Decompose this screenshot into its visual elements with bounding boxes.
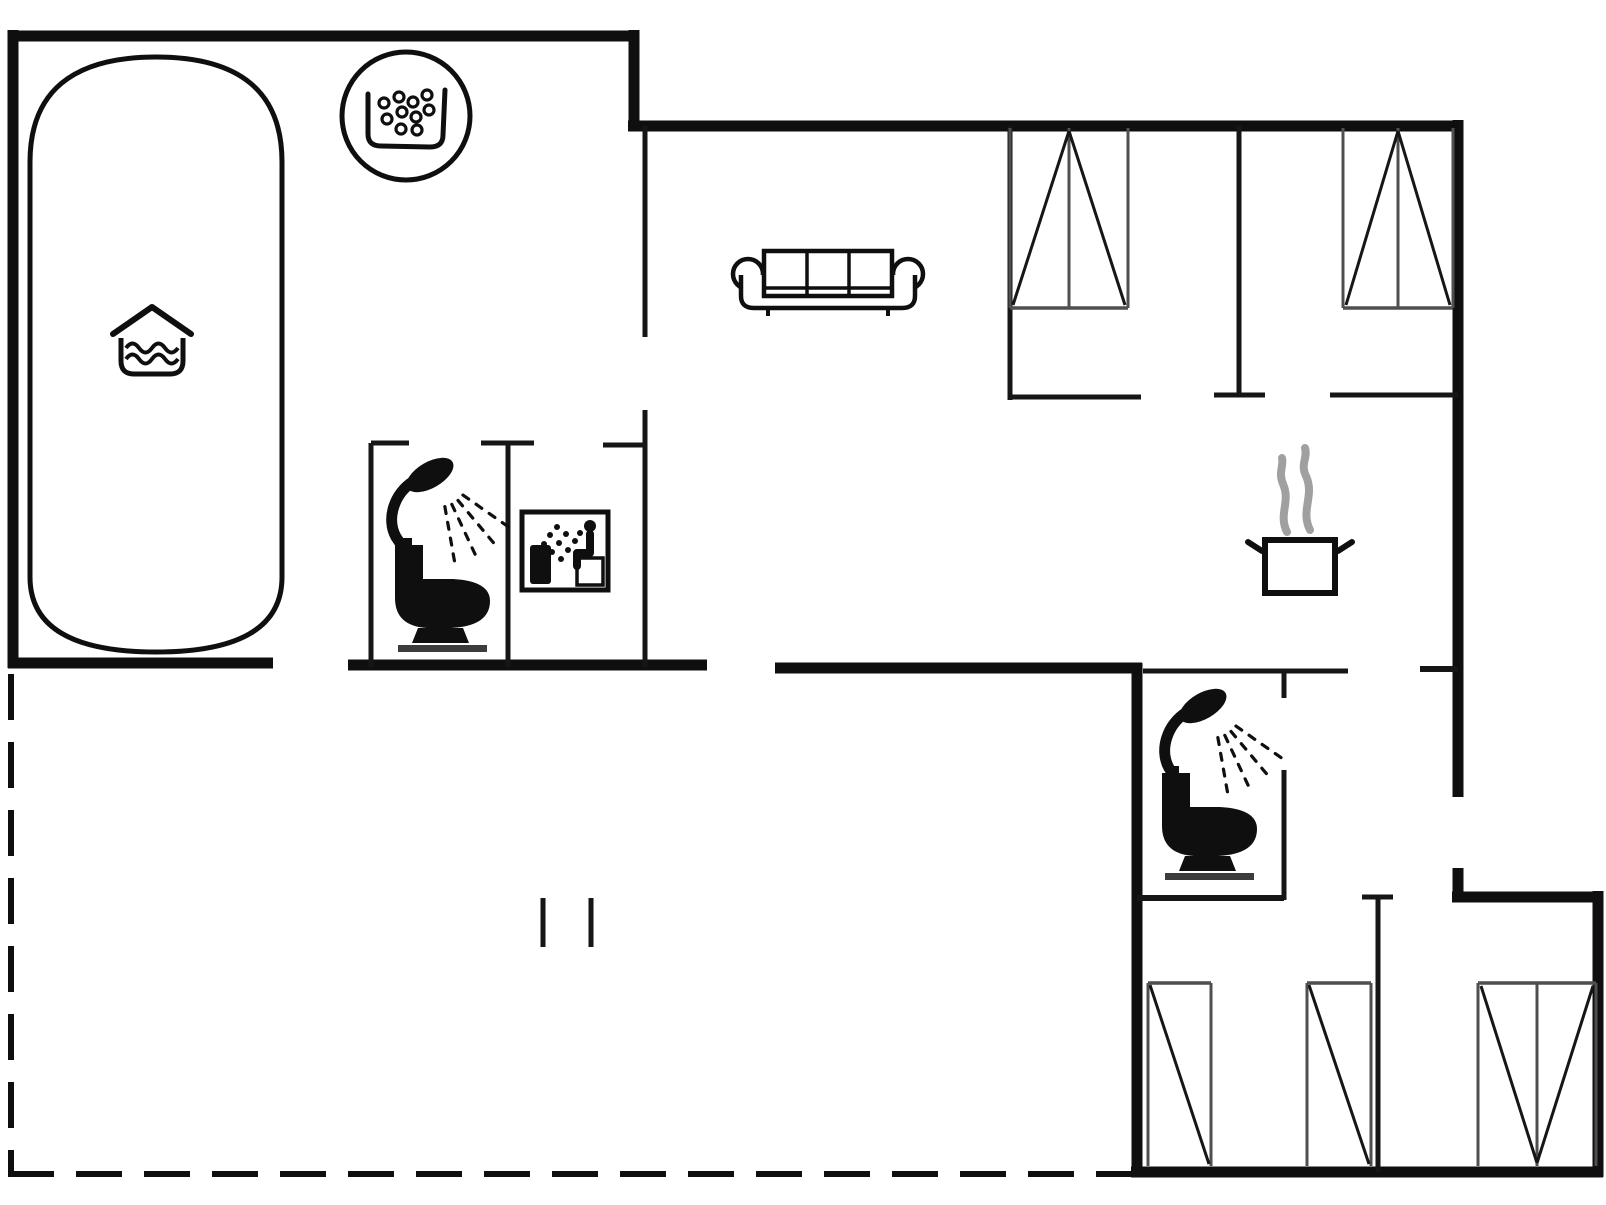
walls [8, 30, 1603, 1177]
sauna-icon [522, 512, 608, 590]
terrace-boundary [8, 674, 1134, 1174]
wardrobe-bedroom-1 [1010, 128, 1128, 308]
sofa [733, 251, 923, 316]
whirlpool-icon [342, 52, 470, 180]
cooking-pot-icon [1248, 448, 1352, 593]
indoor-pool-icon [113, 307, 191, 374]
floor-plan [0, 0, 1606, 1205]
wardrobe-bedroom-2 [1343, 128, 1453, 308]
wardrobe-storage-mid [1307, 983, 1371, 1166]
toilet-icon-bath2 [1162, 766, 1257, 880]
floor-plan-canvas [0, 0, 1606, 1205]
wardrobe-storage-left [1148, 983, 1211, 1166]
wardrobe-storage-right [1478, 983, 1596, 1166]
